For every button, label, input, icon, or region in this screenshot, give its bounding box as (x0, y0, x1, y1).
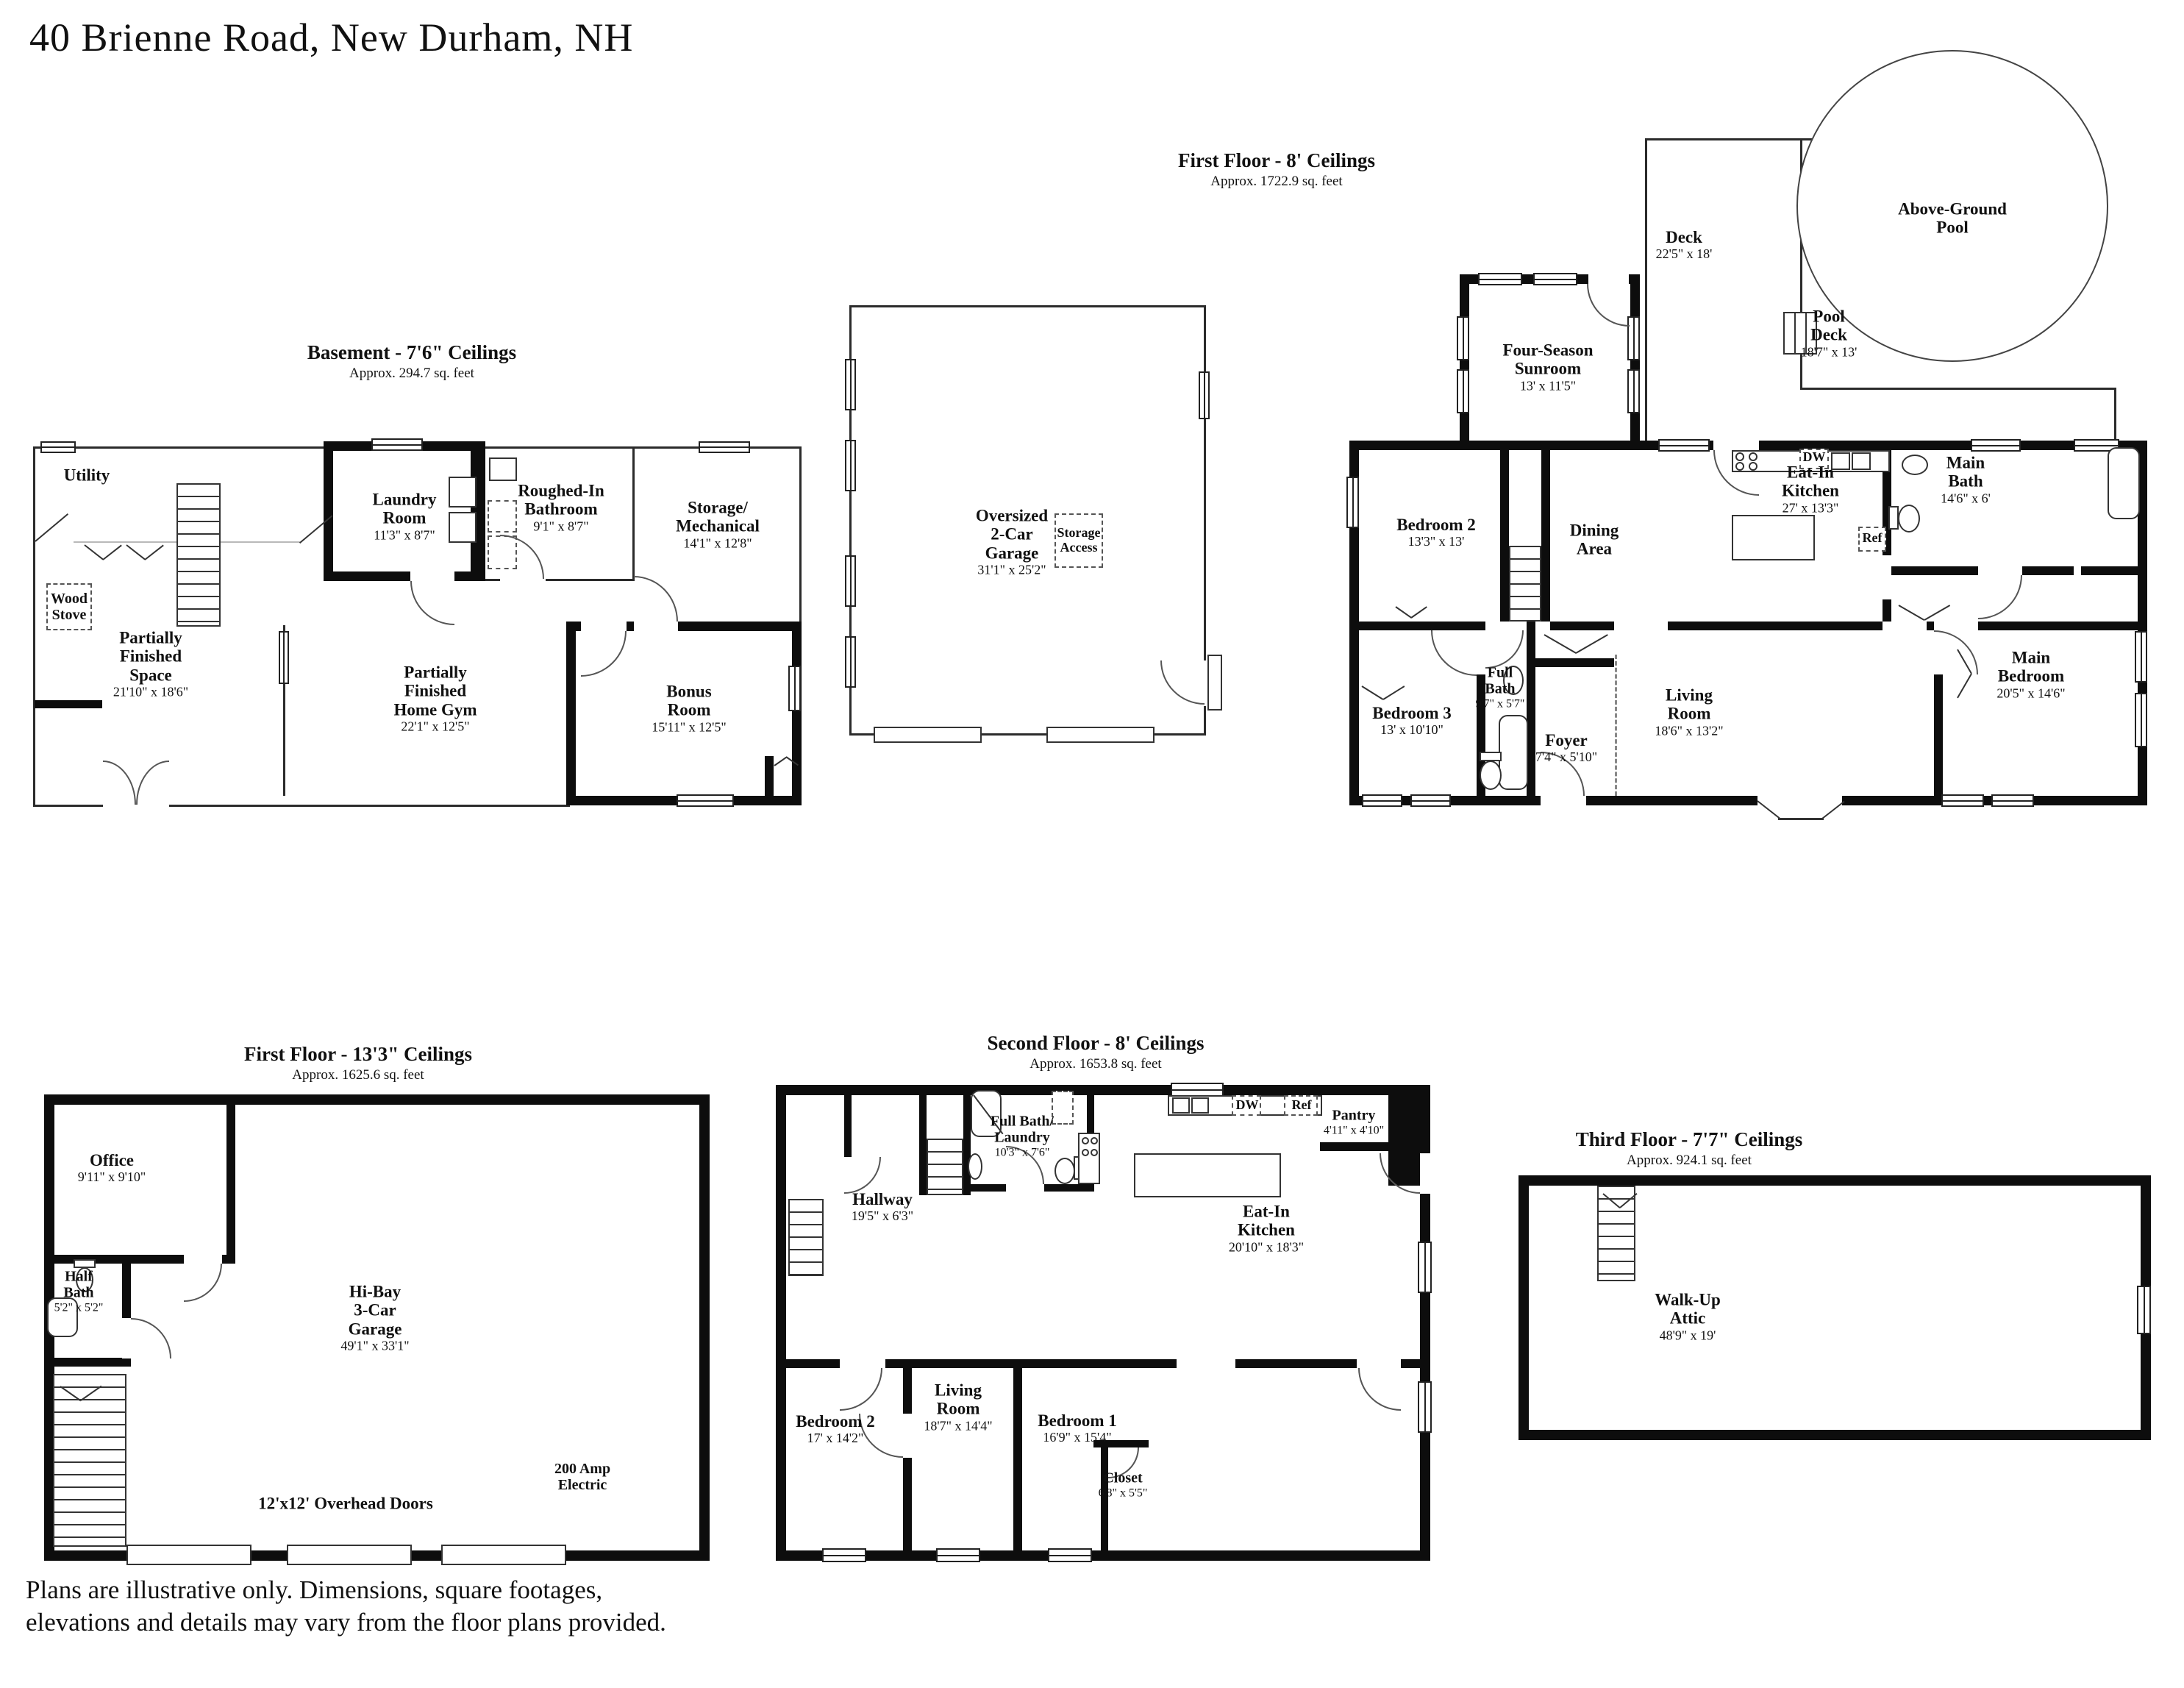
wall (33, 446, 35, 807)
door-gap (1588, 274, 1629, 284)
island-glyph (1732, 515, 1815, 560)
room-label-laundry: Laundry Room11'3" x 8'7" (373, 490, 437, 542)
door-gap (1357, 1359, 1401, 1368)
staircase (176, 483, 221, 627)
window-glyph (1418, 1242, 1432, 1293)
label-ref: Ref (1292, 1098, 1312, 1113)
wall (632, 446, 635, 581)
sink-glyph (1172, 1097, 1190, 1114)
garage-door-glyph (874, 727, 982, 743)
disclaimer-text: Plans are illustrative only. Dimensions,… (26, 1574, 666, 1639)
wall (1320, 1142, 1388, 1151)
room-label-home-gym: Partially Finished Home Gym22'1" x 12'5" (393, 663, 477, 735)
wall (1934, 674, 1943, 796)
staircase (927, 1139, 963, 1195)
window-glyph (1457, 316, 1469, 360)
window-glyph (1410, 794, 1451, 807)
room-label-utility: Utility (64, 466, 110, 484)
stove-glyph (1091, 1149, 1098, 1156)
door-gap (1883, 555, 1891, 599)
door-gap (1713, 441, 1759, 450)
sink-glyph (489, 457, 517, 481)
wall (776, 1085, 1430, 1095)
bay-window-gap (1757, 796, 1842, 805)
window-glyph (845, 359, 856, 410)
room-label-bedroom2-2f: Bedroom 217' x 14'2" (796, 1412, 875, 1446)
room-label-attic: Walk-Up Attic48'9" x 19' (1655, 1290, 1720, 1342)
sink-glyph (968, 1153, 982, 1180)
sink-glyph (1852, 452, 1871, 470)
wall (1550, 622, 1614, 630)
room-label-pool: Above-Ground Pool (1898, 200, 2007, 238)
room-label-bedroom1: Bedroom 116'9" x 15'4" (1038, 1411, 1117, 1445)
wall (1500, 450, 1509, 622)
room-label-dining: Dining Area (1570, 521, 1619, 559)
room-label-main-bath: Main Bath14'6" x 6' (1941, 453, 1991, 505)
window-glyph (845, 440, 856, 491)
room-label-deck: Deck22'5" x 18' (1656, 228, 1713, 262)
window-glyph (2135, 693, 2147, 747)
cased-opening (1615, 655, 1617, 796)
wall (699, 1094, 710, 1561)
room-label-bath-laundry: Full Bath/ Laundry10'3" x 7'6" (991, 1114, 1054, 1160)
wall (1460, 274, 1469, 450)
room-label-oversized-garage: Oversized 2-Car Garage31'1" x 25'2" (976, 507, 1048, 578)
wall (169, 805, 570, 807)
door-landing (1207, 655, 1222, 711)
wall (1519, 1175, 1529, 1440)
overhead-door-glyph (441, 1545, 566, 1565)
wall (844, 1085, 852, 1157)
deck-rail (2114, 388, 2116, 443)
room-label-half-bath: Half Bath5'2" x 5'2" (54, 1269, 104, 1315)
label-dw: DW (1236, 1098, 1259, 1113)
room-label-office: Office9'11" x 9'10" (78, 1151, 146, 1185)
toilet-glyph (1888, 506, 1899, 530)
door-gap (1541, 796, 1586, 805)
room-label-hallway: Hallway19'5" x 6'3" (852, 1190, 913, 1224)
window-glyph (1418, 1381, 1432, 1433)
window-glyph (1941, 794, 1984, 807)
staircase (1509, 546, 1541, 622)
room-label-living: Living Room18'6" x 13'2" (1655, 685, 1723, 738)
window-glyph (699, 441, 750, 453)
label-200-amp-electric: 200 Amp Electric (554, 1461, 610, 1493)
stove-glyph (1749, 452, 1757, 461)
label-ref: Ref (1863, 531, 1883, 546)
wall (1013, 1368, 1022, 1550)
window-glyph (822, 1548, 866, 1562)
deck-rail (1800, 388, 2116, 390)
roughed-fixture-box (488, 500, 517, 533)
room-label-wood-stove: Wood Stove (51, 591, 88, 623)
door-gap (1006, 1184, 1044, 1192)
label-overhead-doors: 12'x12' Overhead Doors (258, 1494, 433, 1512)
door-gap (1177, 1359, 1235, 1368)
wall (792, 622, 802, 805)
room-label-hi-bay-garage: Hi-Bay 3-Car Garage49'1" x 33'1" (340, 1283, 409, 1354)
wall (546, 579, 632, 581)
wall (1630, 274, 1640, 450)
tub-glyph (2108, 447, 2140, 519)
staircase (53, 1374, 126, 1547)
room-label-bedroom3: Bedroom 313' x 10'10" (1372, 704, 1452, 738)
wall (776, 1085, 786, 1561)
washer-glyph (449, 477, 477, 508)
door-gap (184, 1255, 222, 1264)
overhead-door-glyph (287, 1545, 412, 1565)
room-label-foyer: Foyer7'4" x 5'10" (1535, 731, 1597, 765)
wall (44, 1358, 131, 1367)
wall (963, 1085, 971, 1195)
room-label-living-2f: Living Room18'7" x 14'4" (924, 1381, 992, 1433)
stove-glyph (1735, 462, 1744, 471)
window-glyph (1362, 794, 1402, 807)
floor-plan-sheet: 40 Brienne Road, New Durham, NH Basement… (0, 0, 2184, 1688)
sink-glyph (1902, 455, 1928, 475)
window-glyph (845, 636, 856, 688)
sink-glyph (1191, 1097, 1209, 1114)
wall (33, 805, 103, 807)
window-glyph (1199, 371, 1210, 419)
door-gap (1485, 622, 1522, 630)
window-glyph (1478, 273, 1522, 285)
wall (471, 441, 485, 581)
stove-glyph (1082, 1149, 1089, 1156)
toilet-glyph (1480, 761, 1502, 790)
window-glyph (2135, 631, 2147, 683)
wall (919, 1085, 927, 1195)
room-label-roughed-in-bathroom: Roughed-In Bathroom9'1" x 8'7" (518, 481, 604, 533)
window-glyph (1991, 794, 2034, 807)
door-gap (634, 622, 678, 631)
stove-glyph (1735, 452, 1744, 461)
wall (1519, 1175, 2151, 1186)
laundry-box (1052, 1091, 1074, 1125)
tub-glyph (1499, 715, 1528, 790)
room-label-kitchen2: Eat-In Kitchen20'10" x 18'3" (1229, 1202, 1304, 1254)
window-glyph (279, 631, 289, 684)
door-gap (840, 1359, 885, 1368)
window-glyph (371, 438, 423, 451)
toilet-glyph (1898, 505, 1920, 533)
room-label-full-bath: Full Bath9'7" x 5'7" (1476, 665, 1525, 711)
window-glyph (936, 1548, 980, 1562)
wall (1535, 658, 1614, 667)
third-floor-heading: Third Floor - 7'7" Ceilings Approx. 924.… (1576, 1128, 1803, 1169)
window-glyph (1627, 369, 1640, 413)
room-label-partially-finished-space: Partially Finished Space21'10" x 18'6" (113, 629, 188, 700)
wall (35, 700, 102, 708)
room-label-bedroom2: Bedroom 213'3" x 13' (1396, 516, 1476, 549)
wall (566, 622, 576, 805)
door-gap (410, 571, 454, 581)
toilet-glyph (1054, 1158, 1075, 1184)
island-glyph (1134, 1153, 1281, 1197)
wall (324, 571, 485, 581)
window-glyph (2137, 1286, 2151, 1334)
door-gap (1978, 566, 2022, 575)
room-label-sunroom: Four-Season Sunroom13' x 11'5" (1502, 341, 1593, 393)
door-gap (1934, 622, 1978, 630)
wall (485, 579, 500, 581)
stove-glyph (1749, 462, 1757, 471)
window-glyph (1346, 477, 1359, 528)
wall (903, 1368, 912, 1550)
room-label-closet: Closet6'8" x 5'5" (1099, 1470, 1148, 1500)
garage-door-glyph (1046, 727, 1155, 743)
room-label-bonus-room: Bonus Room15'11" x 12'5" (652, 682, 727, 734)
window-glyph (1971, 439, 2021, 452)
wall (799, 446, 802, 623)
window-glyph (1658, 439, 1710, 452)
room-label-pool-deck: Pool Deck18'7" x 13' (1801, 307, 1858, 359)
window-glyph (1048, 1548, 1092, 1562)
wall (776, 1550, 1430, 1561)
door-gap (1420, 1153, 1430, 1194)
door-gap (122, 1318, 131, 1358)
wall (44, 1094, 710, 1105)
window-glyph (677, 794, 734, 807)
dryer-glyph (449, 512, 477, 543)
wall (1519, 1430, 2151, 1440)
wall (1541, 450, 1550, 622)
window-glyph (788, 666, 801, 711)
wall (2081, 566, 2147, 575)
staircase (788, 1199, 824, 1276)
wall (1668, 622, 1883, 630)
room-label-pantry: Pantry4'11" x 4'10" (1324, 1108, 1384, 1138)
wall (765, 756, 774, 805)
wall (324, 441, 333, 581)
room-label-storage-access: Storage Access (1057, 526, 1101, 555)
room-label-main-bedroom: Main Bedroom20'5" x 14'6" (1996, 648, 2065, 700)
room-label-kitchen: Eat-In Kitchen27' x 13'3" (1782, 463, 1839, 515)
door-gap (903, 1414, 912, 1458)
bay-window (1778, 818, 1824, 820)
door-gap (581, 622, 627, 631)
window-glyph (845, 555, 856, 607)
window-glyph (40, 441, 76, 453)
wall (849, 305, 1206, 307)
stove-glyph (1082, 1137, 1089, 1144)
deck-rail (1645, 138, 1647, 441)
deck-rail (1645, 138, 1819, 140)
window-glyph (1457, 369, 1469, 413)
label-dw: DW (1803, 450, 1826, 465)
stove-glyph (1091, 1137, 1098, 1144)
wall (226, 1094, 235, 1264)
overhead-door-glyph (126, 1545, 251, 1565)
window-glyph (1533, 273, 1577, 285)
room-label-storage-mechanical: Storage/ Mechanical14'1" x 12'8" (676, 498, 760, 550)
